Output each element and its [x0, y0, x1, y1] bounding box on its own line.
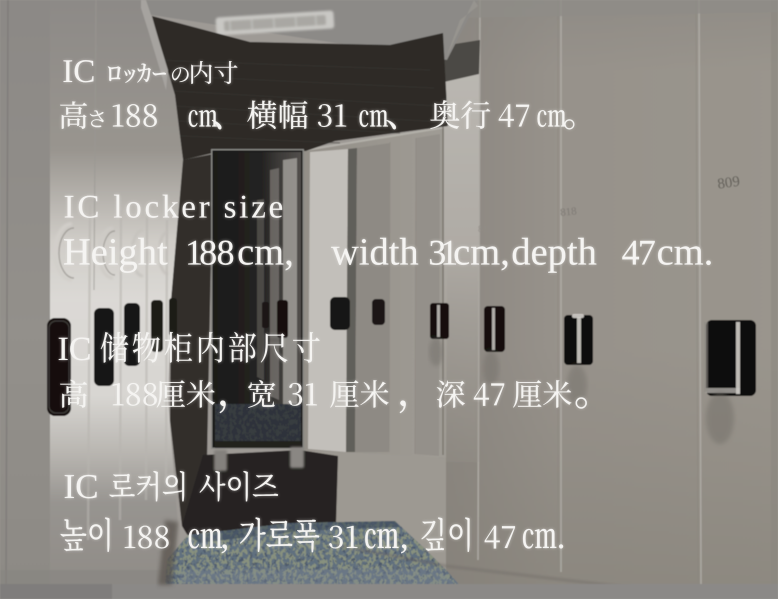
svg-text:818: 818 [560, 205, 578, 219]
svg-text:809: 809 [716, 174, 741, 193]
svg-text:811: 811 [478, 224, 491, 234]
